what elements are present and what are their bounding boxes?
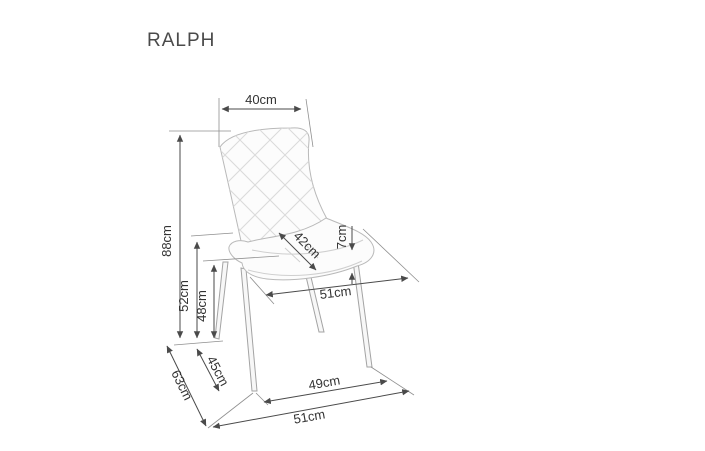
chair-sketch: [70, 120, 440, 391]
product-dimension-sheet: RALPH: [0, 0, 705, 451]
dim-seat-height-label: 48cm: [194, 290, 209, 322]
dim-base-depth-label: 63cm: [168, 367, 195, 402]
ext-floor-left: [174, 341, 223, 345]
dim-seat-back-height-label: 52cm: [176, 280, 191, 312]
chair-rear-left-leg: [215, 262, 228, 339]
chair-dimension-drawing: 40cm 88cm 52cm 48cm 42cm 7cm 51cm 63cm 4…: [0, 0, 705, 451]
chair-front-right-leg: [353, 261, 372, 367]
dim-total-height-label: 88cm: [159, 225, 174, 257]
ext-front-left-foot-b: [256, 393, 268, 405]
chair-front-left-leg: [241, 268, 257, 391]
dim-backrest-width-label: 40cm: [245, 92, 277, 107]
dim-seat-depth-label: 51cm: [319, 283, 352, 302]
ext-seat-depth-left: [250, 277, 274, 304]
ext-seat-back-top: [191, 233, 233, 236]
dim-base-width-label: 51cm: [292, 406, 326, 426]
dim-cushion-thickness-label: 7cm: [334, 225, 349, 250]
ext-front-left-foot-a: [208, 393, 253, 428]
